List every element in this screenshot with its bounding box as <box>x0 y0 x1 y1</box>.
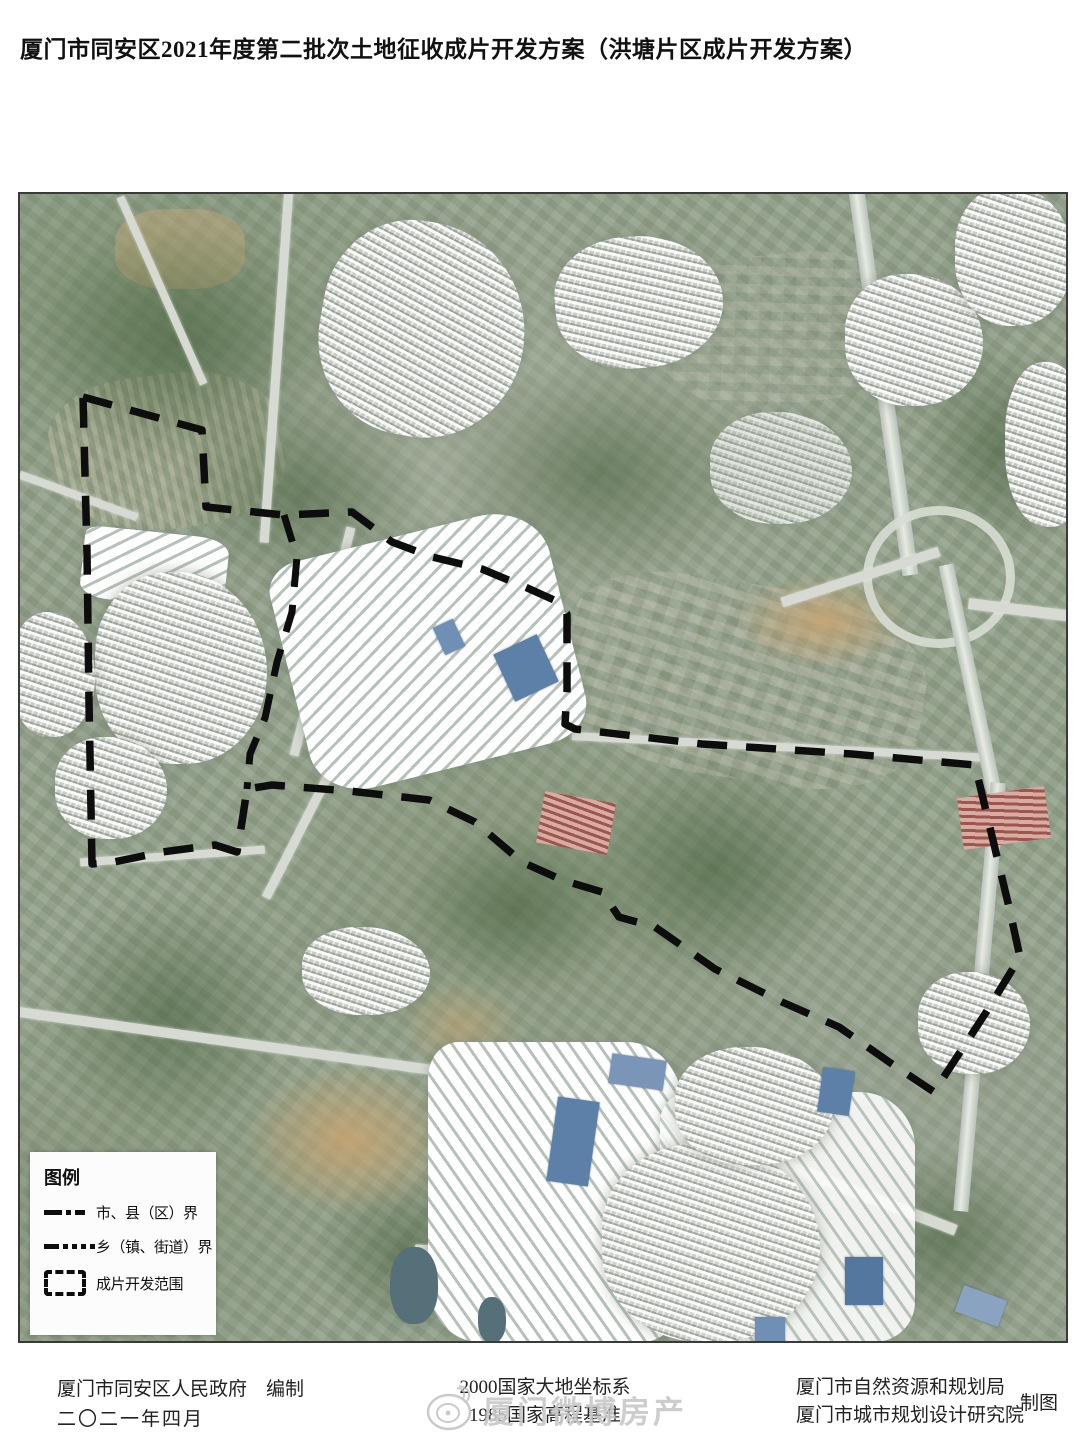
legend-label: 乡（镇、街道）界 <box>96 1236 212 1257</box>
city-county-boundary-symbol <box>44 1210 96 1215</box>
footer-bureau: 厦门市自然资源和规划局 <box>796 1372 1005 1399</box>
satellite-map: 图例 市、县（区）界 乡（镇、街道）界 成片开发范围 <box>18 192 1068 1343</box>
development-area-boundary <box>83 397 1020 1092</box>
map-legend: 图例 市、县（区）界 乡（镇、街道）界 成片开发范围 <box>30 1152 216 1335</box>
legend-item-development-area: 成片开发范围 <box>44 1270 206 1296</box>
legend-label: 成片开发范围 <box>96 1273 183 1294</box>
footer-cartography-note: 制图 <box>1020 1388 1058 1415</box>
internal-boundary-line <box>247 515 297 789</box>
development-area-symbol <box>44 1270 96 1296</box>
footer-institute: 厦门市城市规划设计研究院 <box>796 1400 1024 1427</box>
footer-coordinate-system: 2000国家大地坐标系 <box>425 1372 665 1399</box>
page-title: 厦门市同安区2021年度第二批次土地征收成片开发方案（洪塘片区成片开发方案） <box>20 30 1060 64</box>
legend-item-city-county: 市、县（区）界 <box>44 1202 206 1223</box>
footer-elevation-datum: 1985国家高程基准 <box>425 1400 665 1427</box>
document-page: 厦门市同安区2021年度第二批次土地征收成片开发方案（洪塘片区成片开发方案） <box>0 0 1080 1439</box>
legend-label: 市、县（区）界 <box>96 1202 198 1223</box>
legend-item-township: 乡（镇、街道）界 <box>44 1236 206 1257</box>
footer-date: 二〇二一年四月 <box>57 1404 204 1431</box>
township-boundary-symbol <box>44 1244 96 1249</box>
footer-compiler: 厦门市同安区人民政府 编制 <box>57 1374 304 1401</box>
legend-heading: 图例 <box>44 1164 206 1190</box>
